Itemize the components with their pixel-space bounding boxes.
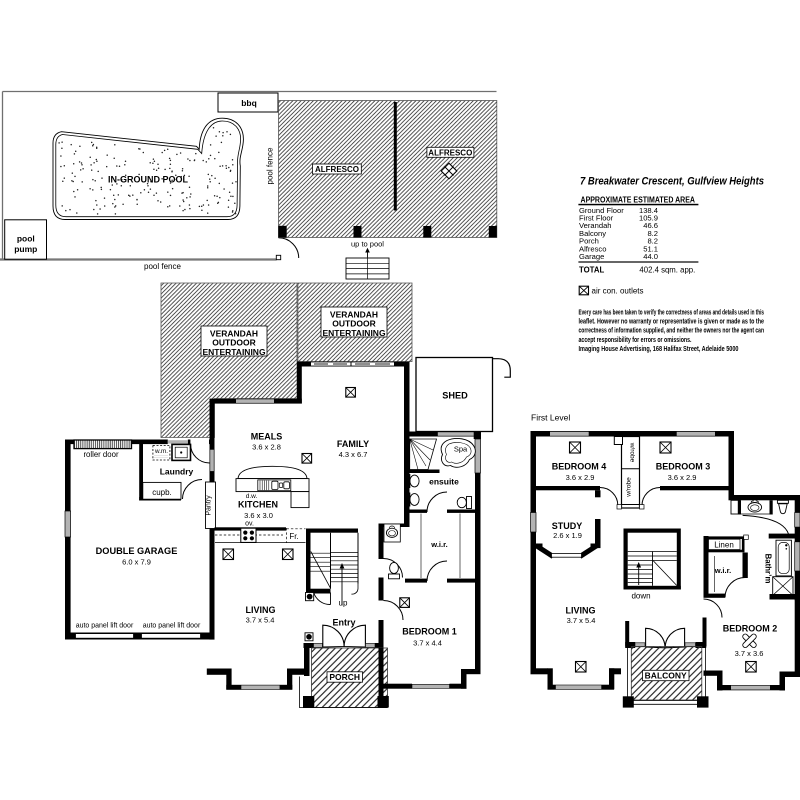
svg-text:w/robe: w/robe [629, 442, 636, 463]
svg-text:ensuite: ensuite [429, 477, 459, 487]
svg-text:roller door: roller door [83, 450, 119, 459]
svg-text:MEALS: MEALS [251, 432, 283, 442]
svg-text:3.7 x 5.4: 3.7 x 5.4 [246, 616, 275, 625]
svg-text:down: down [631, 592, 650, 601]
svg-text:correctness of information sup: correctness of information supplied, and… [579, 326, 765, 335]
svg-text:Laundry: Laundry [160, 467, 194, 477]
svg-text:bbq: bbq [241, 98, 257, 108]
svg-text:APPROXIMATE ESTIMATED AREA: APPROXIMATE ESTIMATED AREA [581, 195, 696, 204]
svg-text:auto panel lift door: auto panel lift door [143, 623, 201, 630]
svg-text:LIVING: LIVING [245, 605, 275, 615]
svg-text:Every care has been taken to v: Every care has been taken to verify the … [579, 308, 765, 317]
svg-text:pump: pump [14, 244, 37, 254]
svg-text:6.0 x 7.9: 6.0 x 7.9 [122, 558, 151, 567]
svg-text:up to pool: up to pool [351, 240, 384, 249]
svg-text:Bathr’m: Bathr’m [764, 554, 773, 584]
svg-text:FAMILY: FAMILY [337, 439, 369, 449]
svg-text:First Level: First Level [531, 413, 570, 423]
svg-text:ALFRESCO: ALFRESCO [315, 165, 359, 174]
svg-text:3.6 x 3.0: 3.6 x 3.0 [244, 511, 273, 520]
svg-text:3.6 x 2.8: 3.6 x 2.8 [252, 443, 281, 452]
svg-text:3.7 x 5.4: 3.7 x 5.4 [567, 616, 596, 625]
svg-text:BEDROOM 2: BEDROOM 2 [723, 624, 778, 634]
svg-text:TOTAL: TOTAL [579, 265, 605, 274]
svg-text:air con. outlets: air con. outlets [592, 286, 644, 295]
svg-text:BEDROOM 1: BEDROOM 1 [402, 627, 457, 637]
svg-text:Fr.: Fr. [289, 532, 298, 541]
svg-text:44.0: 44.0 [643, 252, 658, 261]
svg-text:accept responsibility for erro: accept responsibility for errors or omis… [579, 335, 692, 344]
svg-text:STUDY: STUDY [552, 521, 583, 531]
svg-text:ov.: ov. [245, 521, 254, 528]
svg-text:2.6 x 1.9: 2.6 x 1.9 [553, 531, 582, 540]
svg-text:auto panel lift door: auto panel lift door [76, 623, 134, 630]
svg-text:3.7 x 4.4: 3.7 x 4.4 [413, 639, 442, 648]
svg-text:w.m.: w.m. [154, 448, 168, 455]
svg-text:3.6 x 2.9: 3.6 x 2.9 [566, 473, 595, 482]
svg-text:cupb.: cupb. [152, 488, 172, 497]
svg-text:Spa: Spa [454, 445, 468, 454]
svg-text:KITCHEN: KITCHEN [238, 500, 278, 510]
svg-text:SHED: SHED [442, 391, 468, 401]
svg-text:3.6 x 2.9: 3.6 x 2.9 [668, 473, 697, 482]
svg-text:ENTERTAINING: ENTERTAINING [322, 328, 386, 338]
svg-text:pool fence: pool fence [144, 262, 181, 271]
svg-text:ENTERTAINING: ENTERTAINING [202, 347, 266, 357]
svg-text:Linen: Linen [714, 540, 734, 549]
svg-text:4.3 x 6.7: 4.3 x 6.7 [339, 450, 368, 459]
svg-text:DOUBLE GARAGE: DOUBLE GARAGE [96, 546, 178, 556]
svg-text:IN-GROUND POOL: IN-GROUND POOL [108, 175, 189, 185]
svg-text:ALFRESCO: ALFRESCO [428, 148, 472, 157]
svg-text:BALCONY: BALCONY [645, 671, 687, 681]
svg-text:w.i.r.: w.i.r. [430, 540, 447, 549]
svg-text:BEDROOM 4: BEDROOM 4 [552, 462, 607, 472]
svg-text:Imaging House Advertising, 168: Imaging House Advertising, 168 Halifax S… [579, 344, 739, 353]
svg-text:pool fence: pool fence [266, 147, 275, 184]
svg-text:leaflet. However no warranty: leaflet. However no warranty or represen… [579, 317, 765, 326]
svg-text:pool: pool [17, 234, 35, 244]
svg-text:up: up [339, 599, 348, 608]
svg-text:3.7 x 3.6: 3.7 x 3.6 [735, 649, 764, 658]
svg-text:Entry: Entry [332, 618, 355, 628]
svg-text:PORCH: PORCH [329, 672, 360, 682]
svg-text:402.4 sqm. app.: 402.4 sqm. app. [639, 265, 695, 274]
svg-text:BEDROOM 3: BEDROOM 3 [656, 462, 711, 472]
svg-text:Garage: Garage [579, 252, 604, 261]
svg-text:Pantry: Pantry [206, 495, 213, 516]
svg-text:w/robe: w/robe [626, 477, 633, 498]
svg-text:LIVING: LIVING [565, 606, 595, 616]
svg-text:7 Breakwater Crescent, Gulfvie: 7 Breakwater Crescent, Gulfview Heights [580, 176, 764, 188]
svg-text:w.i.r.: w.i.r. [714, 566, 731, 575]
